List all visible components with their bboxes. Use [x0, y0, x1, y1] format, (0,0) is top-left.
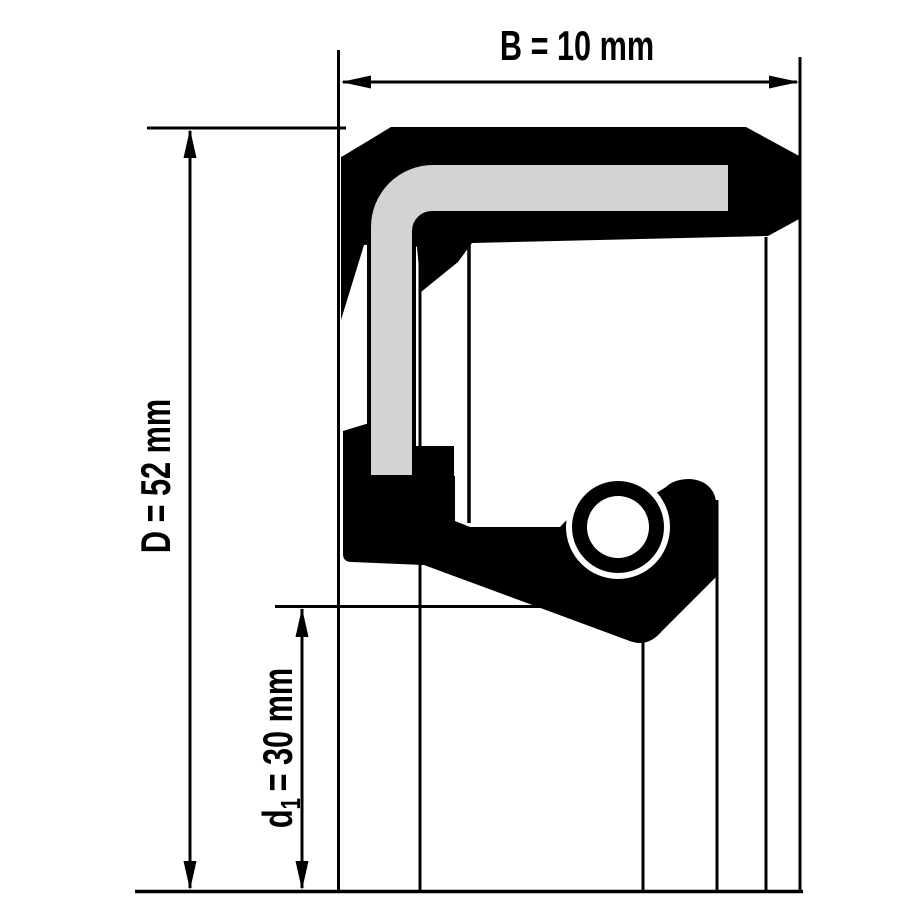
d1-label-prefix: d — [254, 809, 301, 828]
shaft-seal-cross-section: B = 10 mm D = 52 mm d1= 30 mm — [0, 0, 900, 900]
d-dimension-label: D = 52 mm — [132, 399, 179, 553]
d1-label-subscript: 1 — [276, 798, 307, 809]
garter-spring-bore — [587, 496, 649, 558]
b-dimension-label: B = 10 mm — [500, 22, 654, 69]
d1-label-suffix: = 30 mm — [254, 668, 301, 792]
technical-drawing: B = 10 mm D = 52 mm d1= 30 mm — [0, 0, 900, 900]
